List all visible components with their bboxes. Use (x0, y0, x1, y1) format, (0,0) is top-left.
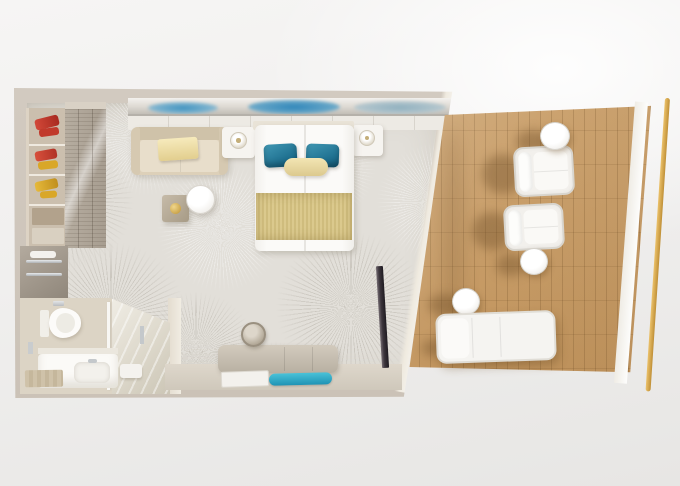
shower-fixture (140, 326, 144, 344)
toilet-tank (40, 310, 49, 337)
shelf-divider (29, 144, 65, 146)
teal-tray (269, 372, 332, 386)
storage-box (32, 228, 64, 244)
dresser-desk (218, 345, 338, 373)
balcony-table-3 (452, 288, 480, 315)
bath-mat (25, 370, 63, 388)
white-book (221, 370, 270, 388)
wall-art-blue-accent (148, 102, 218, 114)
chair-backrest (518, 152, 533, 193)
toilet-seat (56, 313, 75, 333)
wardrobe-door-seam (92, 109, 93, 248)
gold-railing (646, 98, 670, 392)
balcony-armchair-1 (513, 144, 576, 197)
flush-plate (53, 301, 64, 306)
shoe-red (39, 127, 60, 138)
drawer-seam (312, 347, 313, 371)
balcony-armchair-2 (503, 202, 565, 251)
storage-box (32, 208, 64, 225)
towel-roll (30, 251, 56, 258)
round-side-table (186, 185, 215, 214)
faucet (88, 359, 97, 363)
wall-art (128, 98, 452, 116)
balcony (408, 96, 680, 394)
lounger-backrest (440, 318, 469, 359)
wall-art-blue-accent (248, 100, 340, 114)
sink-basin (74, 362, 110, 383)
drawer-seam (284, 347, 285, 371)
floorplan-render (0, 0, 680, 486)
square-side-table (162, 195, 189, 222)
balcony-table-1 (540, 122, 570, 150)
wardrobe-door-seam (78, 109, 79, 248)
balcony-table-2 (520, 248, 548, 275)
sun-lounger (435, 310, 557, 364)
bed-runner (256, 193, 352, 240)
shoe-yellow (40, 190, 57, 198)
shelf-divider (29, 174, 65, 176)
open-shelf-unit (26, 108, 65, 248)
chair-backrest (508, 210, 523, 247)
wardrobe-top-shelf (65, 102, 106, 109)
lamp-finial (236, 138, 241, 143)
sofa-armrest (131, 127, 140, 175)
lounger-seam (471, 318, 473, 358)
toilet-brush-holder (28, 342, 33, 354)
lamp-finial (365, 136, 369, 140)
throw-blanket (157, 137, 198, 162)
shoe-yellow (38, 160, 59, 170)
bolster-pillow (284, 158, 328, 176)
nightstand-left (222, 127, 255, 158)
toilet (49, 308, 81, 338)
nightstand-right (352, 125, 383, 156)
table-lamp (359, 130, 375, 146)
folded-towels (120, 364, 142, 378)
double-bed (255, 125, 354, 251)
wardrobe-sliding-doors (65, 109, 106, 248)
lounger-seam (499, 317, 501, 357)
gold-ornament (170, 203, 181, 214)
round-mirror (241, 322, 266, 347)
luggage-bench (20, 246, 68, 300)
table-lamp (230, 132, 247, 149)
chrome-rail (26, 273, 62, 276)
chrome-rail (26, 260, 62, 263)
stateroom (14, 88, 454, 398)
shelf-divider (29, 204, 65, 206)
